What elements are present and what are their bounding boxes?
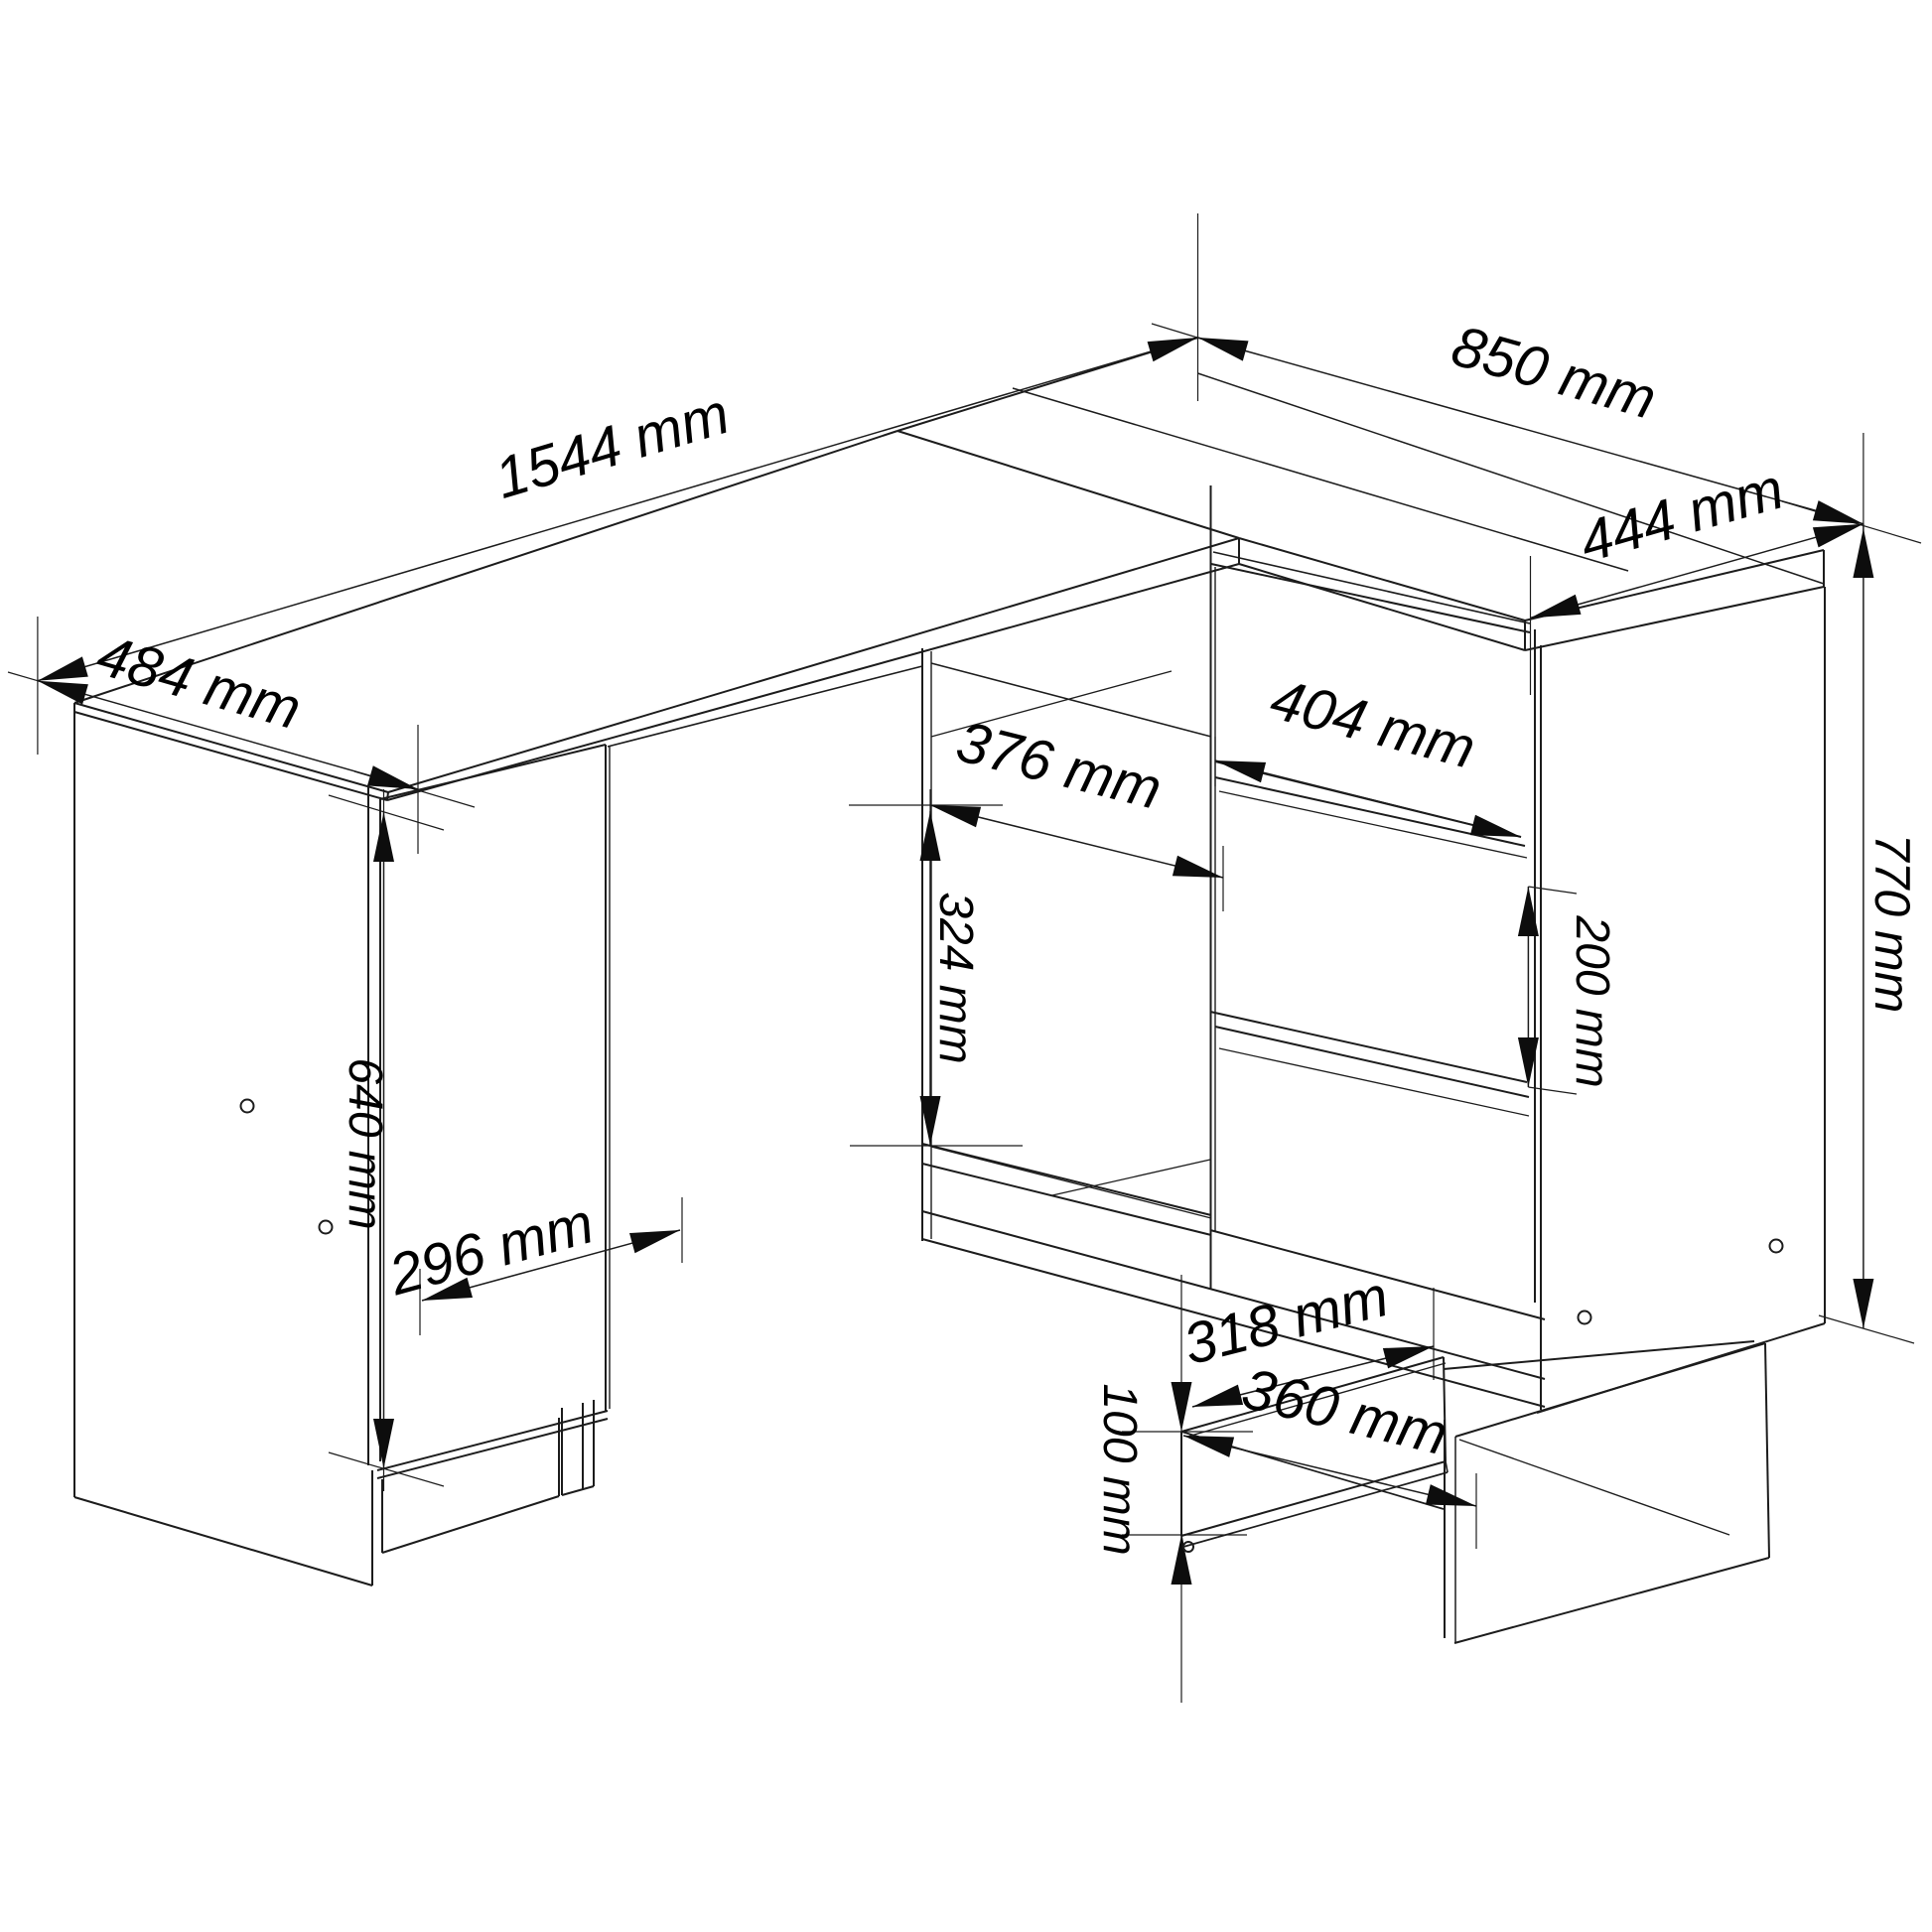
svg-text:770 mm: 770 mm: [1864, 834, 1920, 1014]
svg-text:324 mm: 324 mm: [929, 892, 982, 1063]
svg-text:200 mm: 200 mm: [1566, 914, 1618, 1087]
svg-text:100 mm: 100 mm: [1093, 1383, 1146, 1555]
svg-text:640 mm: 640 mm: [339, 1057, 391, 1229]
